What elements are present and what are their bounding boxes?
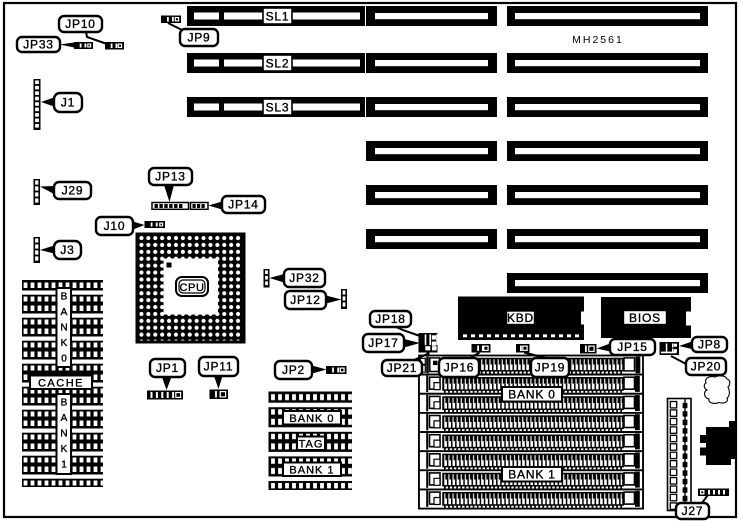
svg-text:SL3: SL3	[266, 101, 290, 115]
svg-text:TAG: TAG	[299, 439, 324, 451]
svg-text:JP19: JP19	[535, 361, 566, 375]
svg-text:1: 1	[61, 460, 67, 471]
svg-text:JP9: JP9	[187, 31, 210, 45]
svg-text:J1: J1	[61, 96, 75, 110]
svg-text:BANK 0: BANK 0	[289, 413, 334, 425]
svg-text:A: A	[61, 307, 68, 318]
svg-text:A: A	[61, 413, 68, 424]
svg-text:JP15: JP15	[617, 340, 648, 354]
svg-text:BANK 1: BANK 1	[289, 465, 334, 477]
svg-text:JP32: JP32	[289, 271, 320, 285]
svg-text:JP17: JP17	[368, 336, 399, 350]
svg-text:B: B	[61, 398, 68, 409]
svg-text:JP1: JP1	[156, 361, 179, 375]
svg-text:MH2561: MH2561	[572, 34, 624, 46]
svg-text:BANK 1: BANK 1	[508, 468, 556, 482]
svg-text:B: B	[61, 292, 68, 303]
svg-text:J27: J27	[682, 504, 704, 518]
svg-text:JP16: JP16	[444, 361, 475, 375]
svg-text:JP33: JP33	[23, 38, 54, 52]
svg-text:J3: J3	[60, 243, 74, 257]
svg-text:N: N	[60, 323, 67, 334]
svg-text:JP21: JP21	[387, 361, 418, 375]
svg-text:0: 0	[61, 354, 67, 365]
svg-text:SL2: SL2	[266, 57, 290, 71]
svg-text:JP12: JP12	[290, 293, 321, 307]
svg-text:JP8: JP8	[698, 338, 721, 352]
svg-text:K: K	[61, 338, 68, 349]
svg-text:JP10: JP10	[65, 17, 96, 31]
svg-text:CPU: CPU	[179, 282, 204, 294]
svg-text:JP18: JP18	[375, 312, 406, 326]
svg-text:JP2: JP2	[282, 363, 305, 377]
svg-text:CACHE: CACHE	[38, 378, 84, 390]
svg-text:K: K	[61, 444, 68, 455]
svg-text:JP20: JP20	[691, 360, 722, 374]
svg-text:J10: J10	[104, 219, 126, 233]
svg-text:JP14: JP14	[228, 198, 259, 212]
svg-text:JP13: JP13	[155, 170, 186, 184]
svg-text:SL1: SL1	[266, 10, 290, 24]
svg-text:BANK 0: BANK 0	[508, 388, 556, 402]
svg-text:BIOS: BIOS	[629, 311, 661, 325]
svg-text:N: N	[60, 429, 67, 440]
svg-text:KBD: KBD	[507, 311, 534, 325]
svg-text:J29: J29	[62, 184, 84, 198]
svg-text:JP11: JP11	[204, 360, 234, 374]
